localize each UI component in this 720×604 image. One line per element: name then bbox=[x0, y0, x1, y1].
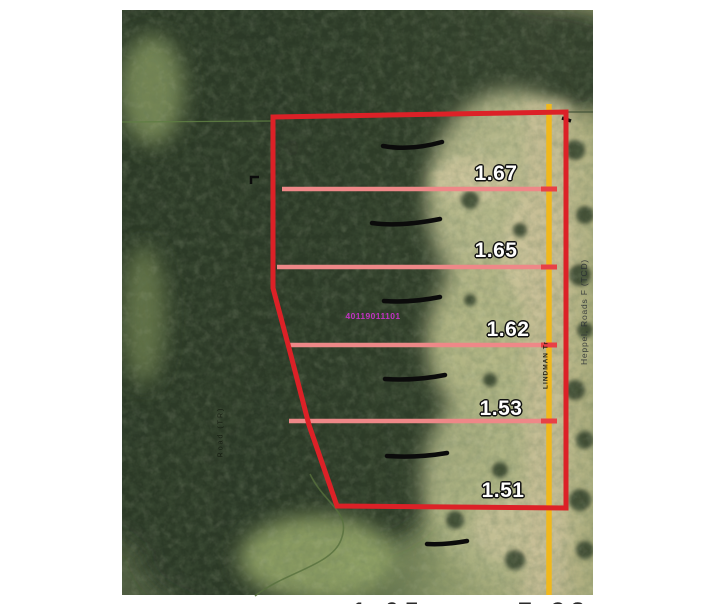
parcel-id-label: 40119011101 bbox=[346, 311, 401, 321]
aerial-photo bbox=[122, 10, 593, 595]
road-label-yellow-line: LINDMAN Tr bbox=[543, 341, 550, 389]
acreage-label: 1.67 bbox=[475, 162, 518, 186]
map-canvas: 1.671.651.621.531.51 40119011101 Heppel,… bbox=[0, 0, 720, 604]
road-label-right: Heppel, Roads F (TCD) bbox=[579, 259, 589, 365]
aerial-photo-texture bbox=[122, 10, 593, 595]
acreage-label: 1.65 bbox=[475, 239, 518, 263]
road-label-left: Road (TR) bbox=[218, 407, 225, 458]
acreage-label: 1.53 bbox=[480, 397, 523, 421]
cutoff-acreage-right: 7.38 bbox=[518, 598, 591, 604]
acreage-label: 1.62 bbox=[487, 318, 530, 342]
cutoff-acreage-left: 1.05 bbox=[352, 598, 425, 604]
acreage-label: 1.51 bbox=[482, 479, 525, 503]
